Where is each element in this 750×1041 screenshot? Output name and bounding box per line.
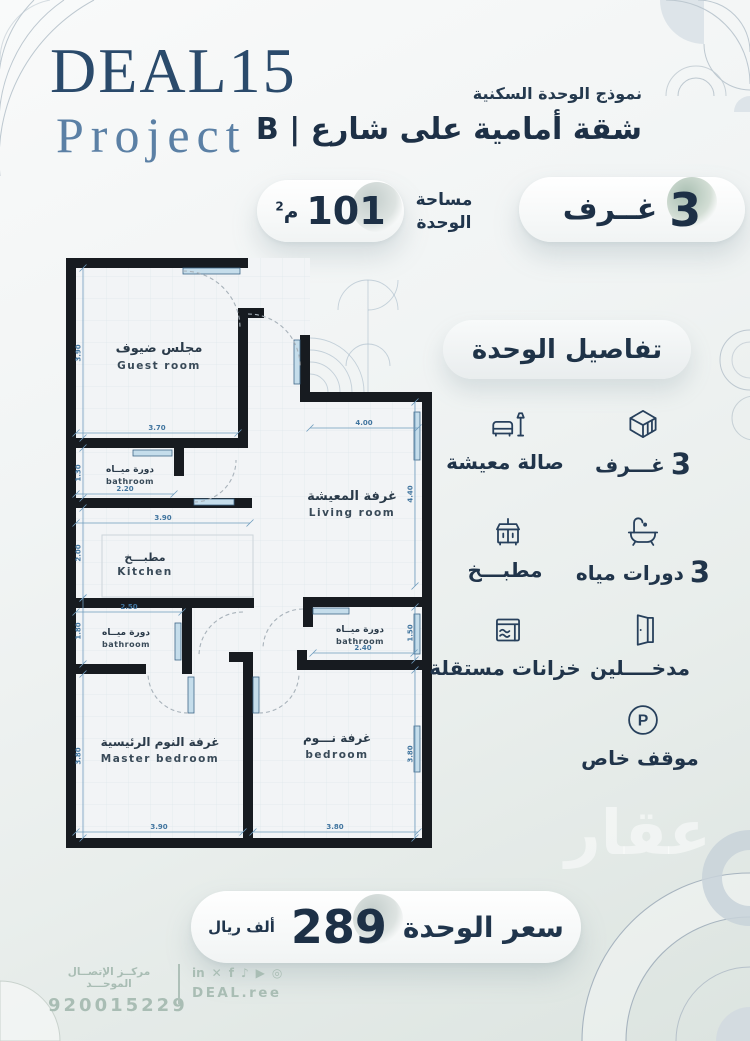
dim-bedroom-height: 3.80 [407,745,415,762]
page-title: شقة أمامية على شارع | B [256,112,642,147]
dim-master-height: 3.80 [75,747,83,764]
linkedin-icon: in [192,966,205,980]
room-label-bath3-ar: دورة ميــاه [336,625,384,635]
floor-plan: 3.70 3.90 2.20 1.30 3.90 2.00 4.00 4.40 … [62,254,432,848]
feature-entrances-label: مدخــــلين [590,656,696,680]
feature-entrances-text: مدخــــلين [590,656,690,680]
room-label-master-en: Master bedroom [101,753,219,765]
feature-tanks-label: خزانات مستقلة [429,656,586,680]
rooms-count-value: 3 [669,187,701,233]
youtube-icon: ▶ [256,966,265,980]
feature-living-hall-label: صالة معيشة [446,450,570,474]
feature-parking-text: موقف خاص [581,746,699,770]
tiktok-icon: ♪ [241,966,249,980]
poster-page: عقار DEAL15 Project نموذج الوحدة السكنية… [0,0,750,1041]
room-label-bedroom-en: bedroom [305,749,368,761]
price-unit: ألف ريال [208,918,275,936]
room-label-bath3-en: bathroom [336,637,384,646]
phone-number: 920015229 [48,995,170,1016]
dim-living-height: 4.40 [407,485,415,502]
room-label-bath2-en: bathroom [102,640,150,649]
details-title-badge: تفاصيل الوحدة [443,320,691,379]
header-kicker: نموذج الوحدة السكنية [256,84,642,103]
dim-guest-height: 3.90 [75,344,83,361]
area-unit-letter: م [284,199,299,223]
dim-kitchen-width: 3.90 [154,514,171,522]
footer-contact: مركــز الإتصــال الموحـــد 920015229 [48,966,170,1016]
room-label-living-en: Living room [309,507,395,519]
bathtub-icon [623,512,663,552]
area-value: 101 [306,192,385,230]
x-icon: ✕ [212,966,222,980]
area-label: مساحة الوحدة [404,189,484,235]
website-name: DEAL.ree [192,985,282,1001]
room-label-guest-ar: مجلس ضيوف [116,341,203,356]
feature-tanks: خزانات مستقلة [423,610,593,680]
room-label-guest-en: Guest room [117,360,201,372]
rooms-count-badge: 3 غــرف [519,177,745,242]
feature-living-hall-text: صالة معيشة [446,450,564,474]
dim-bath3-height: 1.50 [407,624,415,641]
dim-bedroom-width: 3.80 [326,823,343,831]
watermark: عقار [565,796,711,869]
instagram-icon: ◎ [272,966,282,980]
feature-kitchen-label: مطبـــخ [468,558,549,582]
room-label-living-ar: غرفة المعيشة [307,489,397,504]
kitchen-icon [488,512,528,552]
area-label-line1: مساحة [404,189,484,212]
area-unit-sup: 2 [275,199,283,213]
price-badge: سعر الوحدة 289 ألف ريال [191,891,581,963]
feature-parking: P موقف خاص [558,700,728,770]
parking-letter: P [638,713,649,730]
cube-rooms-icon [623,404,663,444]
facebook-icon: f [229,966,234,980]
feature-rooms-text: غـــرف [595,453,665,477]
door-icon [623,610,663,650]
dim-bath1-width: 2.20 [116,485,133,493]
feature-living-hall: صالة معيشة [423,404,593,474]
feature-rooms-count: 3 [671,450,691,479]
brand-subtitle: Project [56,106,247,164]
room-label-kitchen-en: Kitchen [117,566,173,578]
feature-tanks-text: خزانات مستقلة [429,656,580,680]
feature-bathrooms-count: 3 [690,558,710,587]
call-center-label: مركــز الإتصــال الموحـــد [48,966,170,990]
dim-master-width: 3.90 [150,823,167,831]
feature-kitchen: مطبـــخ [423,512,593,582]
room-label-kitchen-ar: مطبـــخ [124,551,165,564]
room-label-bedroom-ar: غرفة نـــوم [303,731,371,746]
footer-links: in ✕ f ♪ ▶ ◎ DEAL.ree [192,966,282,1001]
rooms-count-label: غــرف [563,192,658,227]
room-label-bath1-ar: دورة ميــاه [106,465,154,475]
dim-kitchen-height: 2.00 [75,544,83,561]
area-unit: م2 [275,199,298,223]
room-label-master-ar: غرفة النوم الرئيسية [101,735,220,750]
header: نموذج الوحدة السكنية شقة أمامية على شارع… [256,84,642,147]
feature-rooms-label: 3 غـــرف [595,450,691,479]
plan-decorative-arcs [310,280,398,392]
price-value: 289 [291,904,387,950]
parking-icon: P [623,700,663,740]
dim-bath2-width: 2.50 [120,603,137,611]
dim-bath1-height: 1.30 [75,464,83,481]
area-label-line2: الوحدة [404,212,484,235]
feature-bathrooms-label: 3 دورات مياه [576,558,710,587]
water-tank-icon [488,610,528,650]
room-label-bath2-ar: دورة ميــاه [102,628,150,638]
dim-living-width: 4.00 [355,419,372,427]
dim-bath2-height: 1.80 [75,622,83,639]
room-label-bath1-en: bathroom [106,477,154,486]
footer-divider [178,964,180,1004]
feature-parking-label: موقف خاص [581,746,705,770]
price-label: سعر الوحدة [403,911,564,944]
social-icons: in ✕ f ♪ ▶ ◎ [192,966,282,980]
feature-kitchen-text: مطبـــخ [468,558,543,582]
dim-guest-width: 3.70 [148,424,165,432]
sofa-icon [488,404,528,444]
area-badge: 101 م2 [257,180,404,242]
